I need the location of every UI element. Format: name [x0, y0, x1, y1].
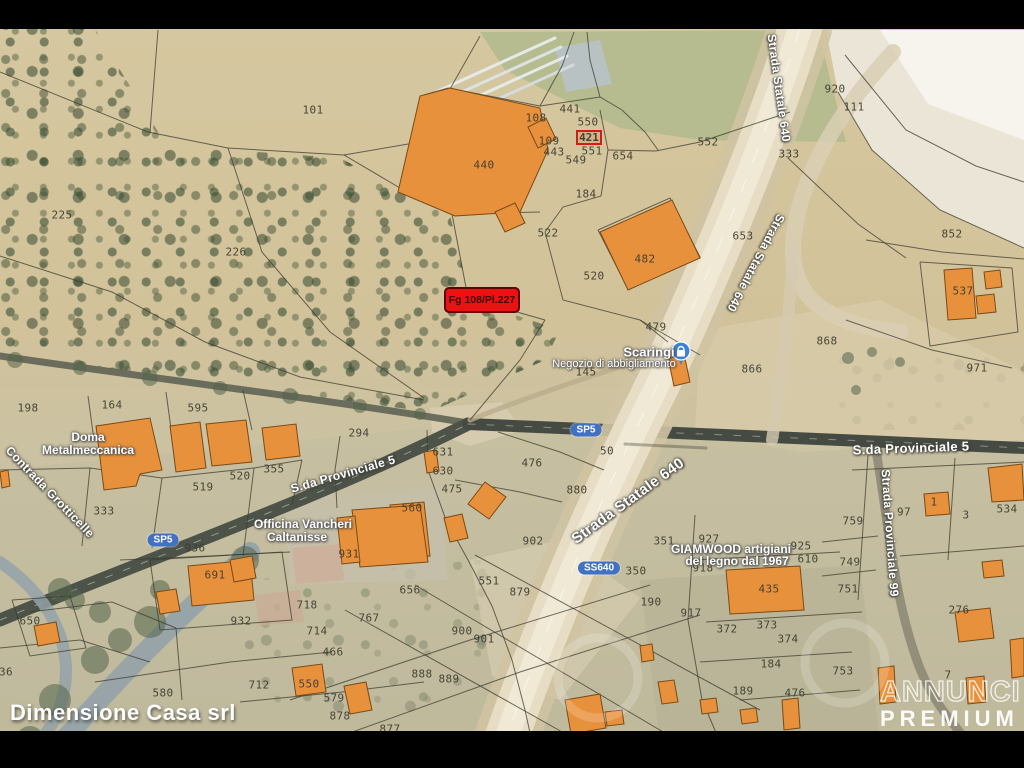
parcel-number: 653: [732, 230, 753, 243]
parcel-number: 355: [263, 463, 284, 476]
parcel-number: 466: [322, 646, 343, 659]
road-label: Contrada Grotticelle: [3, 443, 97, 540]
parcel-number: 549: [565, 154, 586, 167]
parcel-number: 925: [790, 540, 811, 553]
parcel-number: 482: [634, 253, 655, 266]
parcel-number: 164: [101, 399, 122, 412]
parcel-number: 190: [640, 596, 661, 609]
parcel-number: 595: [187, 402, 208, 415]
parcel-number: 868: [816, 335, 837, 348]
letterbox-bar-bottom: [0, 731, 1024, 768]
parcel-number: 880: [566, 484, 587, 497]
parcel-number: 550: [577, 116, 598, 129]
poi-label[interactable]: Caltanisse: [267, 530, 327, 544]
parcel-number: 656: [399, 584, 420, 597]
parcel-number: 350: [625, 565, 646, 578]
watermark-annunci: ANNUNCI: [880, 678, 1010, 707]
parcel-number: 902: [522, 535, 543, 548]
parcel-number: 852: [941, 228, 962, 241]
parcel-number: 333: [93, 505, 114, 518]
parcel-number: 551: [478, 575, 499, 588]
letterbox-bar-top: [0, 0, 1024, 29]
parcel-number: 534: [996, 503, 1017, 516]
parcel-number: 276: [948, 604, 969, 617]
parcel-number: 759: [842, 515, 863, 528]
parcel-number: 374: [777, 633, 798, 646]
parcel-number: 189: [732, 685, 753, 698]
poi-label[interactable]: Metalmeccanica: [42, 443, 134, 457]
road-label: Strada Statale 640: [724, 212, 787, 315]
road-label: S.da Provinciale 5: [289, 452, 397, 495]
poi-label[interactable]: del legno dal 1967: [685, 554, 788, 568]
parcel-number: 97: [897, 506, 911, 519]
parcel-number: 520: [583, 270, 604, 283]
parcel-number: 712: [248, 679, 269, 692]
parcel-number: 476: [521, 457, 542, 470]
parcel-number: 333: [778, 148, 799, 161]
parcel-number: 520: [229, 470, 250, 483]
parcel-number: 226: [225, 246, 246, 259]
parcel-number: 650: [19, 615, 40, 628]
parcel-highlight-label: Fg 108/Pl.227: [444, 287, 520, 313]
parcel-number: 537: [952, 285, 973, 298]
parcel-number: 522: [537, 227, 558, 240]
listing-watermark: ANNUNCI PREMIUM: [880, 678, 1010, 730]
parcel-number: 443: [543, 146, 564, 159]
parcel-number: 901: [473, 633, 494, 646]
parcel-number: 751: [837, 583, 858, 596]
route-badge-sp5: SP5: [148, 534, 179, 547]
road-label: Strada Statale 640: [764, 33, 793, 143]
parcel-number: 631: [432, 446, 453, 459]
poi-label[interactable]: Officina Vancheri: [254, 517, 352, 531]
parcel-number: 610: [797, 553, 818, 566]
route-badge-sp5: SP5: [571, 424, 602, 437]
parcel-number: 1: [930, 496, 937, 509]
parcel-number: 878: [329, 710, 350, 723]
map-labels: 1012252264401084415501094435515496541845…: [0, 0, 1024, 768]
watermark-premium: PREMIUM: [880, 708, 1010, 730]
parcel-number: 550: [298, 678, 319, 691]
parcel-number: 519: [192, 481, 213, 494]
parcel-number: 579: [323, 692, 344, 705]
parcel-number: 691: [204, 569, 225, 582]
parcel-number: 184: [575, 188, 596, 201]
parcel-number: 373: [756, 619, 777, 632]
parcel-number: 931: [338, 548, 359, 561]
parcel-number: 479: [645, 321, 666, 334]
parcel-number: 936: [184, 542, 205, 555]
parcel-number: 630: [432, 465, 453, 478]
parcel-highlight-box: 421: [576, 130, 602, 145]
poi-label[interactable]: Negozio di abbigliamento: [552, 358, 676, 370]
parcel-number: 198: [17, 402, 38, 415]
parcel-number: 372: [716, 623, 737, 636]
poi-label[interactable]: Doma: [71, 430, 104, 444]
parcel-number: 889: [438, 673, 459, 686]
route-badge-ss640: SS640: [578, 562, 620, 575]
parcel-number: 654: [612, 150, 633, 163]
parcel-number: 932: [230, 615, 251, 628]
map-viewport[interactable]: 1012252264401084415501094435515496541845…: [0, 0, 1024, 768]
parcel-number: 294: [348, 427, 369, 440]
parcel-number: 888: [411, 668, 432, 681]
parcel-number: 36: [0, 666, 13, 679]
parcel-number: 111: [843, 101, 864, 114]
parcel-number: 184: [760, 658, 781, 671]
parcel-number: 971: [966, 362, 987, 375]
parcel-number: 749: [839, 556, 860, 569]
agency-watermark: Dimensione Casa srl: [10, 700, 236, 726]
parcel-number: 552: [697, 136, 718, 149]
parcel-number: 580: [152, 687, 173, 700]
parcel-number: 441: [559, 103, 580, 116]
parcel-number: 917: [680, 607, 701, 620]
parcel-number: 753: [832, 665, 853, 678]
parcel-number: 879: [509, 586, 530, 599]
parcel-number: 435: [758, 583, 779, 596]
parcel-number: 475: [441, 483, 462, 496]
parcel-number: 920: [824, 83, 845, 96]
parcel-number: 225: [51, 209, 72, 222]
parcel-number: 3: [962, 509, 969, 522]
parcel-number: 767: [358, 612, 379, 625]
parcel-number: 108: [525, 112, 546, 125]
parcel-number: 718: [296, 599, 317, 612]
parcel-number: 560: [401, 502, 422, 515]
road-label: Strada Provinciale 99: [879, 469, 902, 597]
road-label: Strada Statale 640: [569, 455, 688, 548]
road-label: S.da Provinciale 5: [852, 438, 969, 457]
parcel-number: 866: [741, 363, 762, 376]
parcel-number: 714: [306, 625, 327, 638]
parcel-number: 440: [473, 159, 494, 172]
parcel-number: 476: [784, 687, 805, 700]
parcel-number: 900: [451, 625, 472, 638]
parcel-number: 101: [302, 104, 323, 117]
parcel-number: 50: [600, 445, 614, 458]
